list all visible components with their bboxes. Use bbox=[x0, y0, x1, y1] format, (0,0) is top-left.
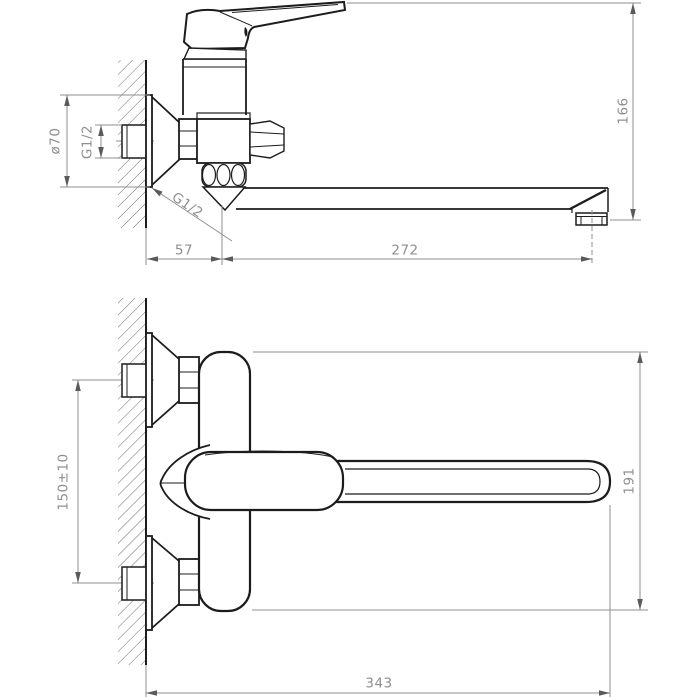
dimensions-front-view bbox=[75, 352, 648, 697]
dim-272: 272 bbox=[391, 244, 418, 258]
lever-handle-side bbox=[184, 2, 345, 59]
dim-191: 191 bbox=[623, 467, 637, 494]
lever-handle-front bbox=[161, 445, 344, 519]
hex-nut bbox=[179, 119, 199, 159]
faucet-technical-drawing: ø70 G1/2 G1/2 57 272 166 150±10 191 343 bbox=[0, 0, 700, 700]
dim-flange-diameter: ø70 bbox=[49, 128, 63, 155]
dim-343: 343 bbox=[365, 677, 392, 691]
arrowheads-front bbox=[75, 352, 643, 696]
front-view bbox=[72, 298, 648, 697]
drawing-canvas bbox=[0, 0, 700, 700]
dim-150: 150±10 bbox=[57, 453, 71, 510]
wall-hatch-front bbox=[118, 298, 146, 665]
spout-side bbox=[236, 188, 608, 225]
dim-wall-thread: G1/2 bbox=[81, 125, 95, 159]
dim-166: 166 bbox=[617, 97, 631, 124]
side-view bbox=[60, 2, 641, 265]
dim-57: 57 bbox=[175, 244, 193, 258]
flange bbox=[146, 95, 181, 187]
side-plug bbox=[250, 121, 284, 158]
